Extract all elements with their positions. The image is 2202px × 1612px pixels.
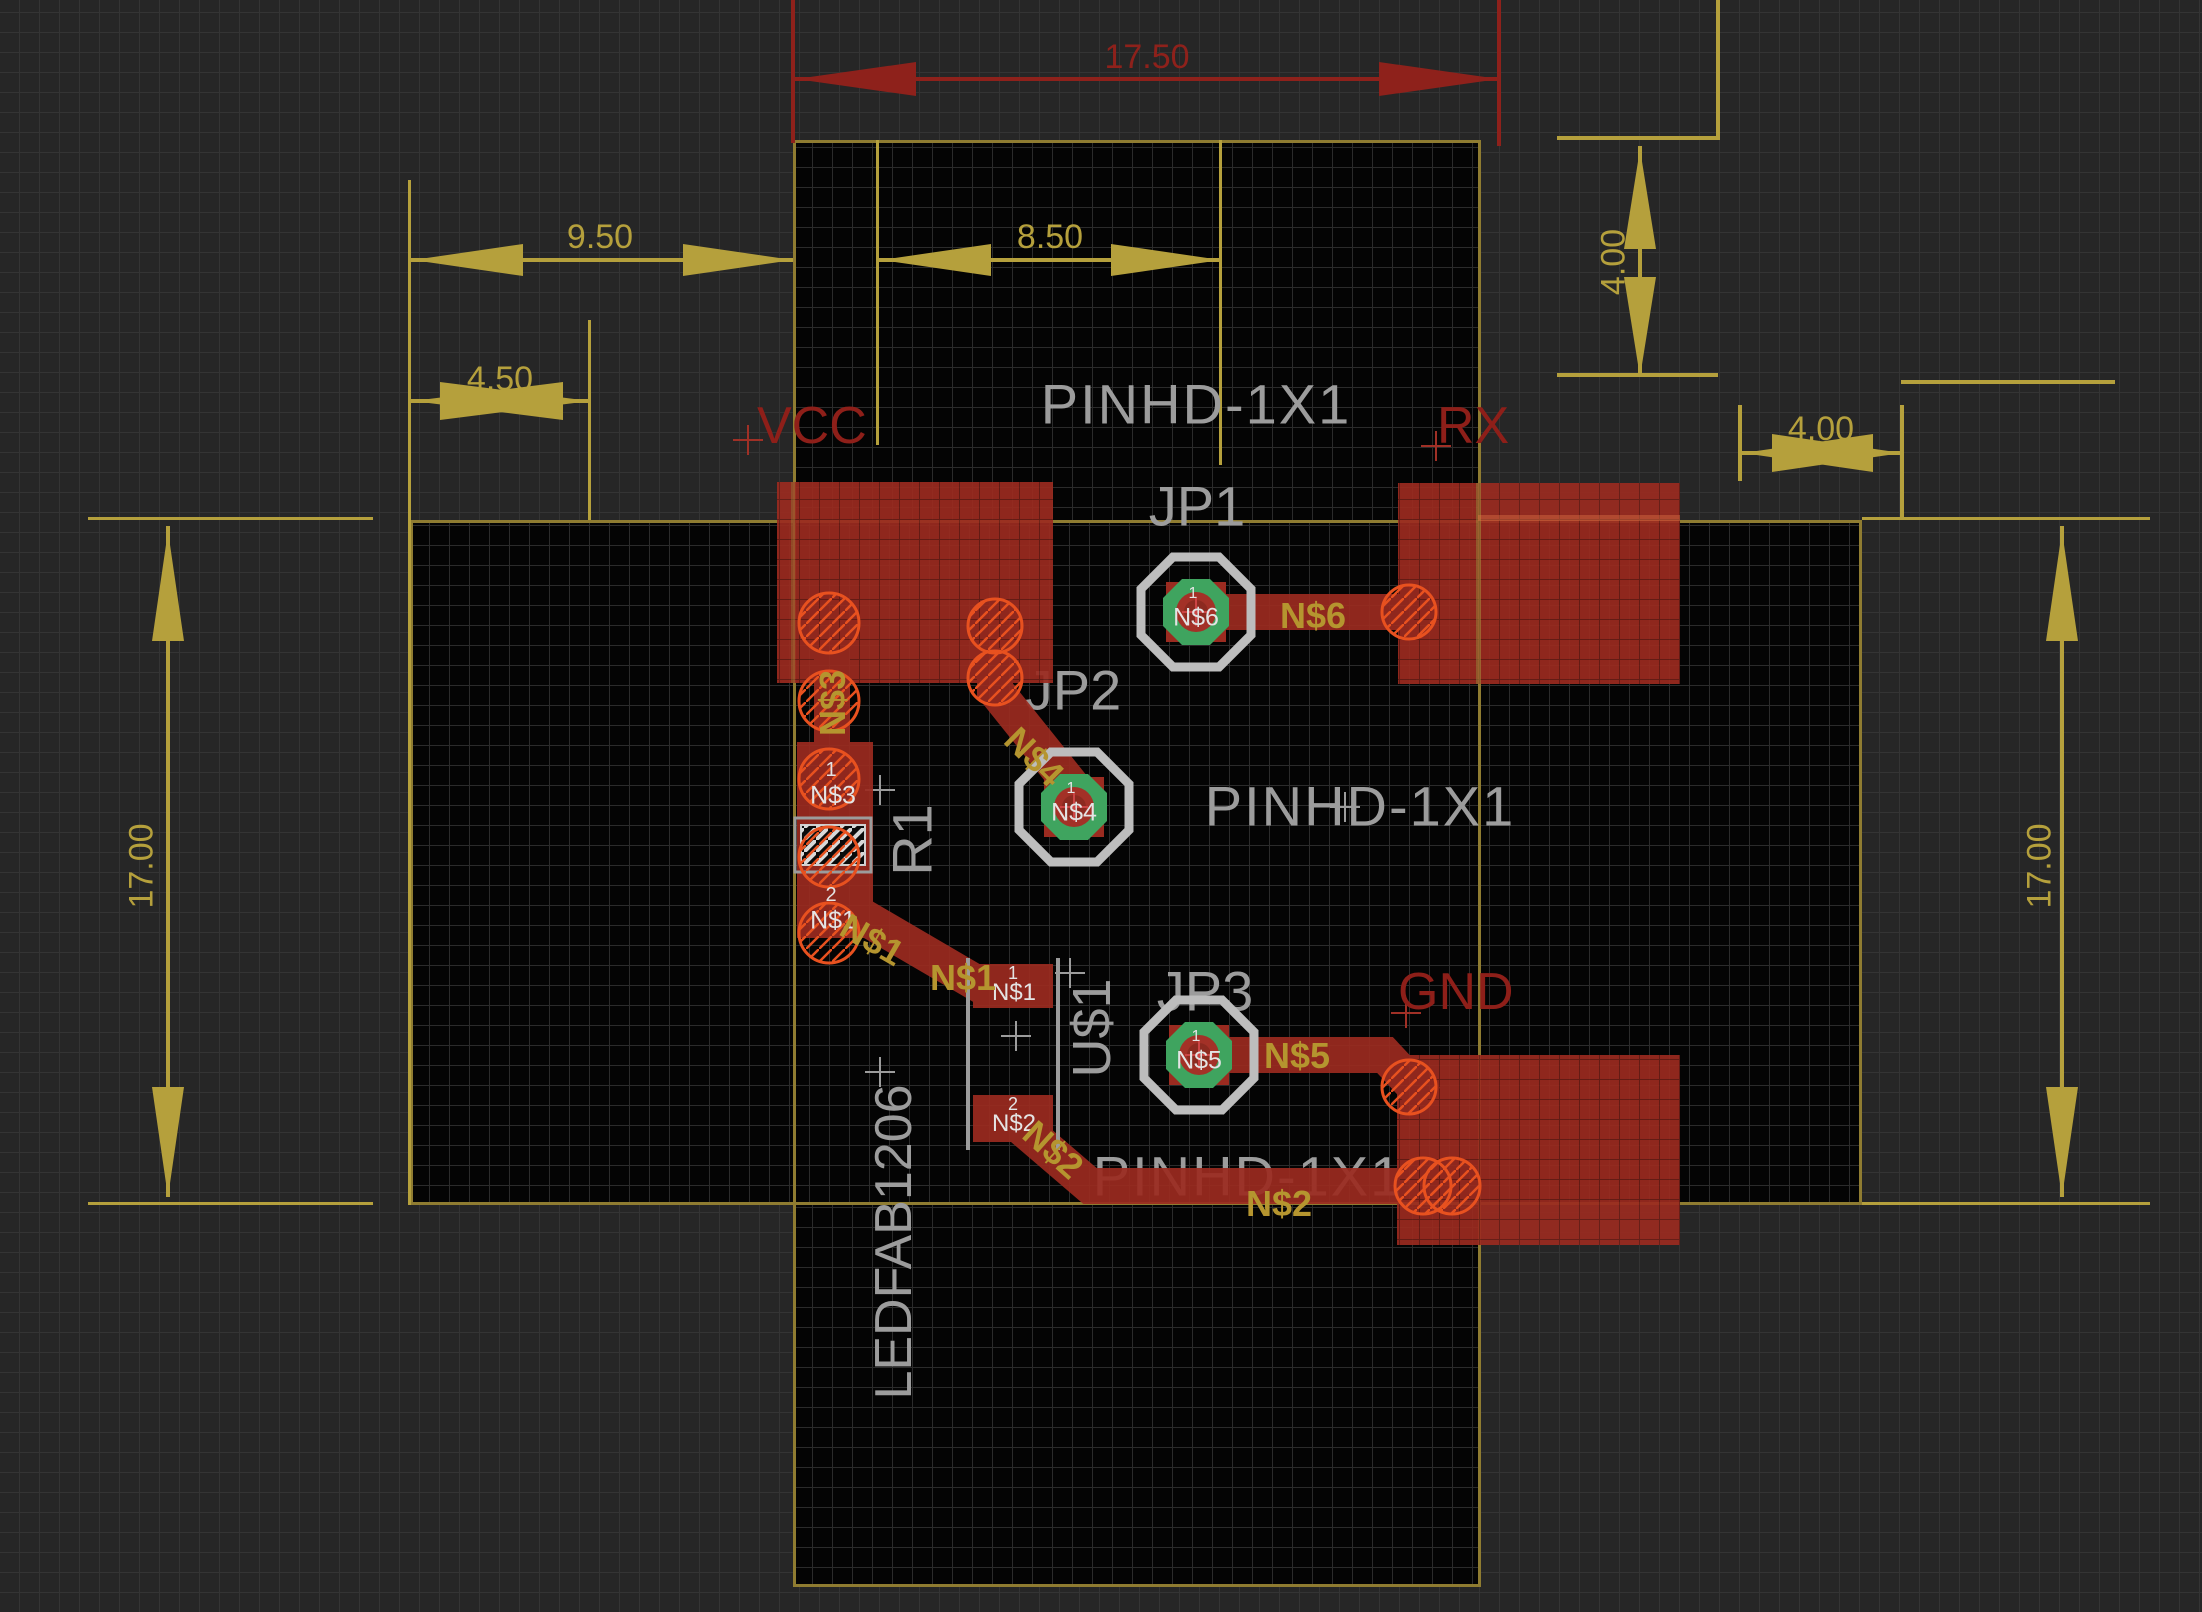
net-label-n3[interactable]: N$3 xyxy=(812,670,854,736)
outline-through-rx-pad xyxy=(1476,483,1481,684)
drill-finger-1[interactable] xyxy=(968,599,1022,653)
jp3-pad-net: N$5 xyxy=(1176,1049,1222,1074)
u1-pad1-net: N$1 xyxy=(992,981,1036,1005)
signal-label-gnd[interactable]: GND xyxy=(1398,962,1514,1022)
r1-pad2-number: 2 xyxy=(825,885,836,905)
arm-edge-through-rx-pad xyxy=(1478,515,1680,521)
u1-outline-right[interactable] xyxy=(1056,958,1060,1150)
net-label-n2[interactable]: N$2 xyxy=(1246,1183,1312,1225)
via-n2-b[interactable] xyxy=(1424,1158,1480,1214)
pad-gnd-grid xyxy=(1397,1055,1680,1245)
jp1-pin-number: 1 xyxy=(1189,586,1198,602)
drill-chain-4[interactable] xyxy=(799,827,859,887)
r1-pad1-number: 1 xyxy=(825,760,836,780)
net-label-n6[interactable]: N$6 xyxy=(1280,595,1346,637)
net-label-n1[interactable]: N$1 xyxy=(930,957,996,999)
drill-finger-2[interactable] xyxy=(968,651,1022,705)
signal-label-rx[interactable]: RX xyxy=(1437,396,1509,456)
pad-rx-grid xyxy=(1398,483,1680,684)
drill-chain-1[interactable] xyxy=(799,593,859,653)
copper-layer xyxy=(0,0,2202,1612)
jp1-pad-net: N$6 xyxy=(1173,606,1219,631)
via-rx[interactable] xyxy=(1382,585,1436,639)
outline-through-vcc-pad xyxy=(791,482,795,683)
pcb-canvas: 17.50 9.50 8.50 4.50 4.00 4.00 17.00 17.… xyxy=(0,0,2202,1612)
jp3-pin-number: 1 xyxy=(1192,1029,1201,1045)
jp2-pad-net: N$4 xyxy=(1051,801,1097,826)
via-gnd[interactable] xyxy=(1382,1060,1436,1114)
signal-label-vcc[interactable]: VCC xyxy=(757,396,867,456)
net-label-n5[interactable]: N$5 xyxy=(1264,1035,1330,1077)
jp2-pin-number: 1 xyxy=(1067,781,1076,797)
r1-pad1-net: N$3 xyxy=(810,784,856,809)
